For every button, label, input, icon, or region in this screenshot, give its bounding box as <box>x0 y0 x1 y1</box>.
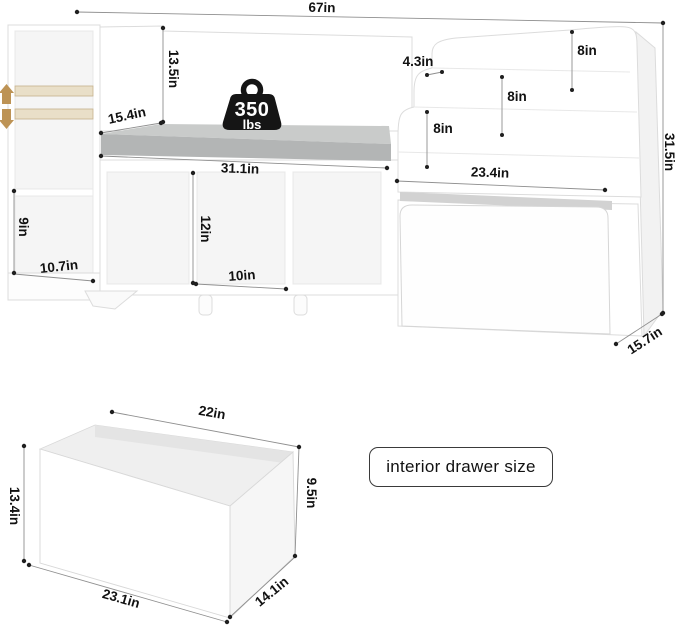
adjustable-shelf-1 <box>15 86 93 96</box>
left-base-wedge <box>85 291 137 309</box>
dim-label-width: 67in <box>292 0 352 18</box>
furniture-illustration <box>0 0 679 625</box>
adjustable-shelf-2 <box>15 109 93 119</box>
left-bookcase-base <box>8 273 100 300</box>
dim-label-backrest-height: 13.5in <box>164 39 182 99</box>
dim-label-cubby-height: 12in <box>196 199 214 259</box>
dim-label-total-height: 31.5in <box>660 122 678 182</box>
dim-label-shelf-gap-3: 8in <box>557 42 617 60</box>
interior-drawer-size-caption: interior drawer size <box>369 447 553 487</box>
cubby-opening-3 <box>293 172 381 284</box>
dim-label-shelf-lip: 4.3in <box>388 53 448 71</box>
weight-badge-unit: lbs <box>222 118 282 132</box>
dim-label-drawer-back-height: 9.5in <box>302 463 320 523</box>
bench-leg-1 <box>199 295 212 315</box>
lower-cubby <box>15 119 93 189</box>
dim-line-9-5in <box>295 447 299 556</box>
dim-label-shelf-gap-1: 8in <box>413 120 473 138</box>
dim-label-seat-width: 31.1in <box>210 159 271 179</box>
dim-line-67in <box>77 12 663 23</box>
toybox-drawer-front <box>400 205 610 334</box>
bench-leg-2 <box>294 295 307 315</box>
dim-label-shelf-gap-2: 8in <box>487 88 547 106</box>
cubby-opening-1 <box>107 172 189 284</box>
top-cubby <box>15 31 93 86</box>
drawer-box <box>40 425 295 618</box>
dim-label-right-width: 23.4in <box>460 163 521 183</box>
fixed-shelf <box>15 189 93 196</box>
product-dimension-diagram: 67in 13.5in 15.4in 31.1in 9in 10.7in 12i… <box>0 0 679 625</box>
dim-label-drawer-front-height: 13.4in <box>5 476 23 536</box>
dim-label-left-shelf-height: 9in <box>14 197 32 257</box>
mid-cubby <box>15 96 93 109</box>
